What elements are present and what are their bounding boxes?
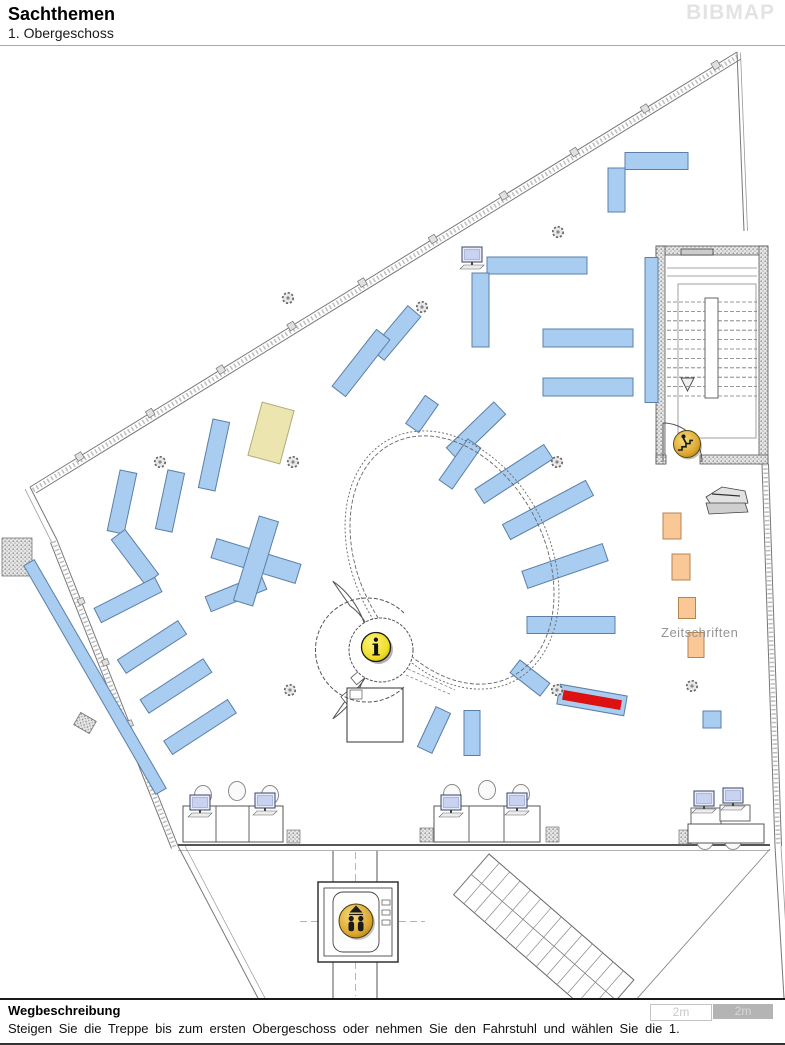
- bookshelf: [510, 660, 550, 696]
- scale-bar-segment-1: 2m: [650, 1004, 712, 1021]
- scale-bar-segment-2: 2m: [713, 1004, 773, 1019]
- bookshelf: [527, 617, 615, 634]
- computer-icon: [721, 788, 745, 810]
- bibmap-logo: BIBMAP: [686, 1, 775, 25]
- wall-block: [420, 828, 433, 842]
- bookshelf: [140, 659, 212, 713]
- page-title: Sachthemen: [8, 4, 115, 25]
- computer-icon: [188, 795, 212, 817]
- wall-mullion: [101, 658, 109, 666]
- footer: Wegbeschreibung Steigen Sie die Treppe b…: [0, 998, 785, 1045]
- wall-block: [287, 830, 300, 843]
- wall-mullion: [145, 408, 155, 418]
- computer-icon: [505, 793, 529, 815]
- bookshelf: [487, 257, 587, 274]
- computer-icon: [439, 795, 463, 817]
- bookshelf: [332, 329, 390, 396]
- wall-block: [546, 827, 559, 842]
- bookshelf: [164, 700, 236, 755]
- wall-mullion: [499, 191, 509, 201]
- wall-mullion: [570, 147, 580, 157]
- directions-heading: Wegbeschreibung: [8, 1003, 120, 1018]
- workstation-group: [183, 782, 283, 843]
- stairs-icon: [674, 431, 703, 460]
- bookshelf: [94, 577, 162, 622]
- magazines-label: Zeitschriften: [661, 625, 738, 640]
- column: [687, 681, 697, 691]
- floor-plan: i Zeitschriften: [0, 46, 785, 998]
- staircase-south: [454, 854, 634, 998]
- bookshelf: [645, 258, 658, 403]
- bookshelf: [107, 470, 137, 534]
- bookshelf: [406, 395, 439, 432]
- bookshelf: [117, 621, 186, 674]
- column: [552, 685, 562, 695]
- header: Sachthemen 1. Obergeschoss BIBMAP: [0, 0, 785, 46]
- workstation-group: [688, 788, 764, 850]
- column: [552, 457, 562, 467]
- column: [283, 293, 293, 303]
- bookshelf: [417, 707, 450, 754]
- floor-label: 1. Obergeschoss: [8, 25, 114, 41]
- floor-plan-svg: i: [0, 46, 785, 998]
- magazine-shelf: [672, 554, 690, 580]
- chair: [229, 782, 246, 801]
- bookshelf: [111, 530, 158, 585]
- bookshelf: [543, 378, 633, 396]
- bookshelf: [703, 711, 721, 728]
- column: [288, 457, 298, 467]
- magazine-shelf: [679, 598, 696, 619]
- svg-text:i: i: [372, 635, 381, 662]
- computer-icon: [460, 247, 484, 269]
- wall-mullion: [640, 104, 650, 114]
- bookshelf: [198, 419, 229, 491]
- bookshelf: [625, 153, 688, 170]
- bookshelf: [522, 544, 608, 589]
- workstation-group: [434, 781, 540, 843]
- wall-mullion: [357, 278, 367, 288]
- wall-mullion: [75, 452, 85, 462]
- printer-icon: [706, 487, 748, 514]
- magazine-shelf: [663, 513, 681, 539]
- desk: [688, 824, 764, 843]
- directions-text: Steigen Sie die Treppe bis zum ersten Ob…: [8, 1021, 680, 1036]
- chair: [479, 781, 496, 800]
- wall-mullion: [77, 597, 85, 605]
- table-area: [248, 402, 294, 464]
- computer-icon: [692, 791, 716, 813]
- bookshelf: [543, 329, 633, 347]
- bookshelf: [155, 470, 184, 532]
- bookshelf: [464, 711, 480, 756]
- computer-icon: [253, 793, 277, 815]
- bookshelf: [472, 273, 489, 347]
- bookshelf: [503, 480, 594, 539]
- wall-mullion: [287, 321, 297, 331]
- column: [285, 685, 295, 695]
- column: [553, 227, 563, 237]
- column: [417, 302, 427, 312]
- service-room: [347, 688, 403, 742]
- column: [155, 457, 165, 467]
- bookshelf: [608, 168, 625, 212]
